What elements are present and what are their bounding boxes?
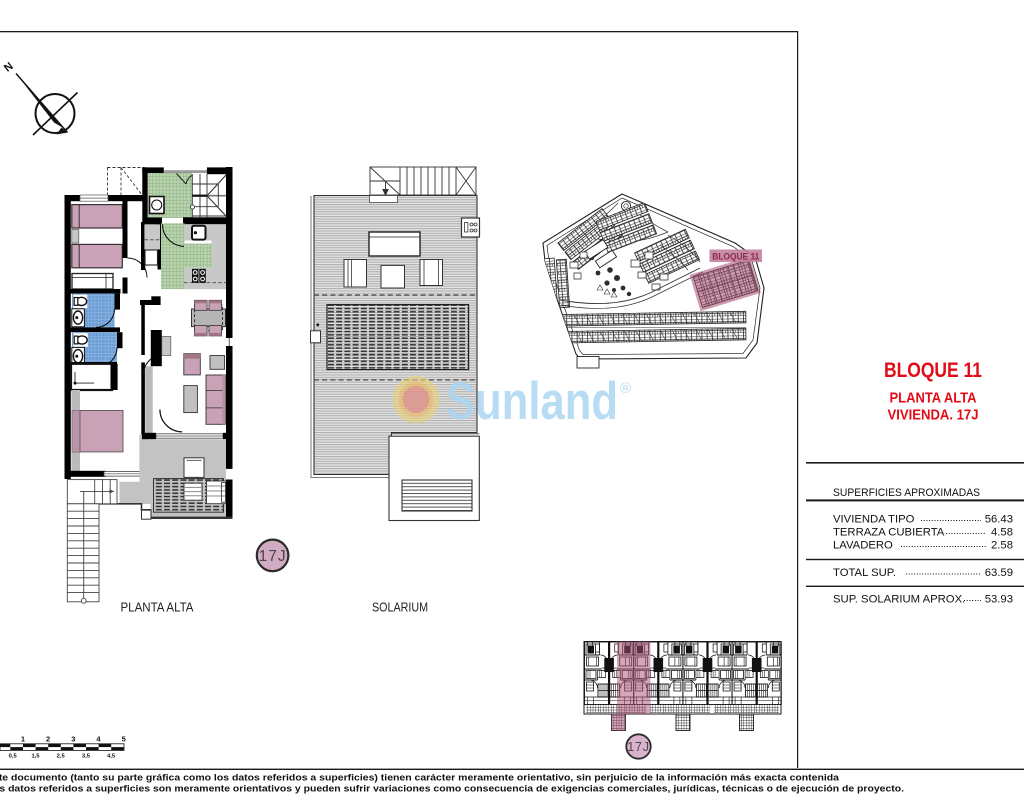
svg-text:PLANTA ALTA: PLANTA ALTA [121, 601, 195, 615]
svg-text:TOTAL SUP.: TOTAL SUP. [833, 567, 896, 579]
svg-text:VIVIENDA TIPO: VIVIENDA TIPO [833, 514, 915, 526]
svg-text:LAVADERO: LAVADERO [833, 540, 893, 552]
svg-text:3,5: 3,5 [82, 754, 91, 760]
svg-text:ste documento (tanto su parte: ste documento (tanto su parte gráfica co… [0, 773, 840, 784]
svg-text:®: ® [620, 380, 631, 397]
svg-text:BLOQUE 11: BLOQUE 11 [712, 251, 759, 261]
svg-text:63.59: 63.59 [985, 567, 1013, 579]
svg-text:2.58: 2.58 [991, 540, 1013, 552]
svg-text:SOLARIUM: SOLARIUM [372, 601, 428, 615]
svg-text:SUP. SOLARIUM APROX.: SUP. SOLARIUM APROX. [833, 594, 965, 606]
svg-text:17J: 17J [259, 548, 287, 565]
svg-text:1: 1 [21, 735, 25, 744]
svg-text:VIVIENDA. 17J: VIVIENDA. 17J [888, 408, 979, 424]
svg-text:Sunland: Sunland [446, 372, 618, 431]
svg-text:56.43: 56.43 [985, 514, 1013, 526]
svg-text:1,5: 1,5 [31, 754, 40, 760]
svg-text:17J: 17J [627, 740, 650, 754]
svg-text:os datos referidos a superfici: os datos referidos a superficies son mer… [0, 784, 904, 795]
svg-text:4,5: 4,5 [107, 754, 116, 760]
svg-text:2,5: 2,5 [57, 754, 66, 760]
svg-text:BLOQUE 11: BLOQUE 11 [884, 359, 982, 382]
svg-text:PLANTA ALTA: PLANTA ALTA [890, 391, 977, 407]
svg-text:5: 5 [122, 735, 126, 744]
svg-text:3: 3 [71, 735, 75, 744]
svg-text:SUPERFICIES APROXIMADAS: SUPERFICIES APROXIMADAS [833, 487, 980, 499]
svg-text:2: 2 [46, 735, 50, 744]
svg-text:53.93: 53.93 [985, 594, 1013, 606]
svg-text:TERRAZA CUBIERTA: TERRAZA CUBIERTA [833, 527, 945, 539]
svg-text:0,5: 0,5 [9, 754, 18, 760]
svg-text:4.58: 4.58 [991, 527, 1013, 539]
